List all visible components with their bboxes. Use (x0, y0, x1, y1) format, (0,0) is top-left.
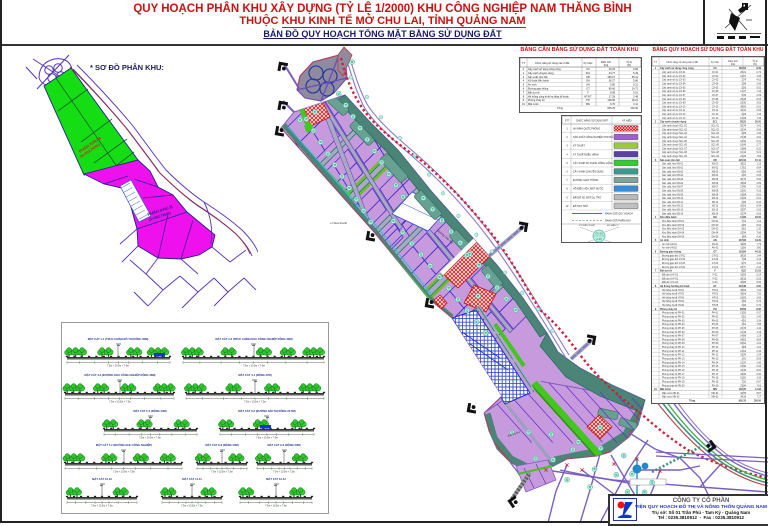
svg-text:MN-01: MN-01 (712, 393, 720, 395)
svg-text:Sản xuất, kho KB-01: Sản xuất, kho KB-01 (662, 163, 684, 166)
svg-text:100.53: 100.53 (739, 67, 747, 70)
svg-text:6.05: 6.05 (757, 213, 762, 215)
svg-text:0.70: 0.70 (757, 305, 762, 307)
svg-text:CX-06: CX-06 (712, 91, 719, 93)
svg-text:Cây xanh sử dụ CX-10: Cây xanh sử dụ CX-10 (662, 105, 686, 108)
svg-text:Cây xanh sử dụ CX-05: Cây xanh sử dụ CX-05 (662, 86, 686, 89)
svg-text:5.21: 5.21 (757, 152, 762, 154)
svg-text:26.21: 26.21 (740, 72, 746, 74)
svg-text:33.68: 33.68 (740, 194, 746, 196)
svg-text:PH-04: PH-04 (712, 324, 719, 326)
svg-text:17.27: 17.27 (740, 91, 746, 93)
svg-text:7.46: 7.46 (757, 91, 762, 93)
svg-text:Sản xuất, kho KB-10: Sản xuất, kho KB-10 (662, 197, 684, 200)
svg-text:21.37: 21.37 (740, 362, 746, 364)
svg-text:39.22: 39.22 (740, 164, 746, 166)
svg-text:6.76: 6.76 (610, 103, 615, 106)
svg-text:5: 5 (566, 162, 568, 165)
svg-text:CX-12: CX-12 (712, 114, 719, 116)
svg-text:Phòng cháy hộ PH-07: Phòng cháy hộ PH-07 (662, 336, 685, 338)
svg-text:20.86: 20.86 (740, 282, 746, 284)
svg-text:6: 6 (566, 171, 568, 174)
svg-text:HT/KT: HT/KT (584, 95, 592, 98)
svg-text:0.51: 0.51 (757, 106, 762, 108)
svg-text:8.81: 8.81 (757, 370, 762, 372)
svg-text:4.41: 4.41 (757, 343, 762, 345)
svg-text:2.44: 2.44 (757, 267, 762, 269)
svg-text:4.10: 4.10 (757, 236, 762, 238)
svg-text:GT: GT (586, 88, 590, 91)
svg-text:7.20: 7.20 (757, 294, 762, 296)
svg-text:KB-08: KB-08 (712, 190, 719, 192)
svg-text:2.09: 2.09 (757, 95, 762, 97)
svg-text:7.36: 7.36 (757, 118, 762, 120)
svg-text:SCL-06: SCL-06 (711, 145, 720, 147)
svg-text:MẶT CẮT 7-7 (ĐƯỜNG KHU CÔNG NG: MẶT CẮT 7-7 (ĐƯỜNG KHU CÔNG NGHIỆP) (96, 442, 152, 447)
svg-text:34.41: 34.41 (740, 110, 746, 112)
svg-text:4.45: 4.45 (757, 171, 762, 173)
svg-text:66.59: 66.59 (740, 308, 747, 311)
svg-text:6.34: 6.34 (757, 202, 762, 204)
svg-text:1.93: 1.93 (757, 133, 762, 135)
svg-text:33.24: 33.24 (740, 355, 746, 357)
svg-text:Sản xuất, kho KB-13: Sản xuất, kho KB-13 (662, 209, 684, 212)
svg-text:1.54: 1.54 (757, 355, 762, 357)
svg-text:8: 8 (523, 95, 525, 98)
svg-text:PH-20: PH-20 (712, 385, 719, 387)
svg-text:Cây xanh chuyê SCL-02: Cây xanh chuyê SCL-02 (662, 129, 688, 131)
svg-text:0.34: 0.34 (757, 366, 762, 368)
svg-text:Kỹ thuật điều hành: Kỹ thuật điều hành (528, 80, 549, 83)
svg-text:GT-04: GT-04 (712, 267, 719, 269)
svg-text:27.96: 27.96 (740, 187, 746, 189)
svg-text:CX-09: CX-09 (712, 103, 719, 105)
svg-text:6: 6 (523, 88, 525, 91)
svg-text:25.74: 25.74 (740, 126, 746, 128)
svg-text:DH-03: DH-03 (712, 229, 719, 231)
svg-text:Hệ thống hạ tầ HT-01: Hệ thống hạ tầ HT-01 (662, 289, 685, 292)
svg-text:CX-04: CX-04 (712, 83, 719, 85)
svg-text:7.5m + 10.5m + 7.5m: 7.5m + 10.5m + 7.5m (265, 506, 287, 508)
svg-text:Sản xuất, kho KB-09: Sản xuất, kho KB-09 (662, 193, 684, 196)
svg-text:CX-08: CX-08 (712, 99, 719, 101)
svg-text:6.01: 6.01 (757, 198, 762, 200)
svg-text:10.81: 10.81 (740, 378, 746, 380)
svg-text:8.39: 8.39 (756, 67, 761, 70)
svg-text:HỒ ĐIỀU HÒA, MẶT NƯỚC: HỒ ĐIỀU HÒA, MẶT NƯỚC (573, 188, 604, 191)
svg-text:HT-03: HT-03 (712, 297, 719, 299)
svg-text:32.55: 32.55 (740, 393, 746, 395)
svg-text:Cây xanh chuyên dụng: Cây xanh chuyên dụng (528, 72, 554, 75)
svg-text:KỸ THUẬT ĐIỀU HÀNH: KỸ THUẬT ĐIỀU HÀNH (573, 153, 599, 156)
svg-text:Cây xanh sử dụ CX-04: Cây xanh sử dụ CX-04 (662, 82, 686, 85)
svg-text:7.27: 7.27 (757, 397, 762, 399)
svg-text:Sản xuất, kho KB-03: Sản xuất, kho KB-03 (662, 170, 684, 173)
svg-text:12.69: 12.69 (740, 118, 746, 120)
svg-text:31.88: 31.88 (740, 148, 746, 150)
svg-text:167.08: 167.08 (739, 239, 747, 242)
svg-text:Tổng: Tổng (557, 106, 563, 110)
svg-text:4.51: 4.51 (742, 320, 747, 322)
svg-text:Đường giao thông: Đường giao thông (660, 251, 681, 254)
svg-text:2.85: 2.85 (742, 133, 747, 135)
svg-text:1.51: 1.51 (742, 324, 747, 326)
svg-text:Cây xanh chuyê SCL-06: Cây xanh chuyê SCL-06 (662, 145, 688, 147)
svg-text:CX-07: CX-07 (712, 95, 719, 97)
svg-text:Khu điều hành DH-04: Khu điều hành DH-04 (662, 231, 685, 234)
svg-text:2.30: 2.30 (757, 229, 762, 231)
svg-text:KB: KB (713, 159, 717, 162)
svg-text:9: 9 (566, 196, 568, 199)
svg-text:Phòng cháy hộ PH-11: Phòng cháy hộ PH-11 (662, 351, 685, 353)
svg-text:100.00: 100.00 (630, 107, 638, 110)
svg-text:Hệ thống hạ tầng kỹ thuật: Hệ thống hạ tầng kỹ thuật (660, 285, 690, 288)
svg-text:Cây xanh chuyê SCL-08: Cây xanh chuyê SCL-08 (662, 152, 688, 154)
svg-text:Chức năng sử dụng các ô đất: Chức năng sử dụng các ô đất (535, 61, 570, 65)
svg-text:Cây xanh sử dụ CX-08: Cây xanh sử dụ CX-08 (662, 98, 686, 101)
svg-text:DH-04: DH-04 (712, 232, 719, 234)
svg-text:4.42: 4.42 (757, 263, 762, 265)
svg-text:KB-10: KB-10 (712, 198, 719, 200)
svg-text:Cây xanh chuyê SCL-03: Cây xanh chuyê SCL-03 (662, 133, 688, 135)
svg-text:Cây xanh sử dụ CX-01: Cây xanh sử dụ CX-01 (662, 71, 686, 74)
svg-text:8: 8 (566, 188, 568, 191)
svg-text:1.19: 1.19 (757, 336, 762, 338)
svg-text:SCL-07: SCL-07 (711, 148, 720, 150)
svg-text:MN: MN (713, 388, 717, 391)
svg-text:Phòng cháy hộ PH-19: Phòng cháy hộ PH-19 (662, 381, 685, 383)
svg-text:27.38: 27.38 (740, 137, 746, 139)
svg-text:7.86: 7.86 (757, 232, 762, 234)
svg-text:13.93: 13.93 (740, 313, 746, 315)
svg-text:GT-02: GT-02 (712, 259, 719, 261)
svg-text:3.35: 3.35 (757, 76, 762, 78)
svg-text:PH-03: PH-03 (712, 320, 719, 322)
svg-text:40.25: 40.25 (609, 68, 616, 71)
svg-text:Hệ thống công trình hạ tầng kỹ: Hệ thống công trình hạ tầng kỹ thuật (528, 95, 569, 98)
svg-text:SCL-01: SCL-01 (711, 126, 720, 128)
svg-text:AN: AN (713, 239, 717, 242)
svg-text:35.08: 35.08 (740, 183, 746, 185)
svg-text:2.96: 2.96 (742, 305, 747, 307)
svg-text:Hệ thống hạ tầ HT-05: Hệ thống hạ tầ HT-05 (662, 304, 685, 307)
svg-text:21.36: 21.36 (740, 370, 746, 372)
svg-text:24.76: 24.76 (740, 328, 746, 330)
svg-text:Đất dự trữ: Đất dự trữ (660, 270, 672, 273)
svg-text:4: 4 (523, 80, 525, 83)
svg-text:MẶT CẮT 10-10: MẶT CẮT 10-10 (92, 476, 112, 481)
svg-text:8.53: 8.53 (757, 99, 762, 101)
svg-text:Phòng cháy hộ PH-16: Phòng cháy hộ PH-16 (662, 370, 685, 372)
svg-text:Phòng cháy hộ PH-08: Phòng cháy hộ PH-08 (662, 339, 685, 341)
svg-text:7.5m + 10.5m + 7.5m: 7.5m + 10.5m + 7.5m (107, 366, 129, 368)
svg-text:7.10: 7.10 (742, 381, 747, 383)
svg-text:3.34: 3.34 (757, 320, 762, 322)
svg-text:Sản xuất, kho KB-07: Sản xuất, kho KB-07 (662, 186, 684, 189)
svg-text:SỐ HIỆU Ô: SỐ HIỆU Ô (607, 224, 619, 227)
svg-text:CX: CX (713, 67, 717, 70)
svg-text:Phòng cháy hộ PH-01: Phòng cháy hộ PH-01 (662, 313, 685, 315)
svg-text:HT-02: HT-02 (712, 294, 719, 296)
svg-text:PH-10: PH-10 (712, 347, 719, 349)
svg-text:6.20: 6.20 (742, 114, 747, 116)
svg-text:STT: STT (565, 119, 570, 122)
svg-text:Phòng cháy hộ PH-15: Phòng cháy hộ PH-15 (662, 366, 685, 368)
svg-text:Tổng: Tổng (689, 400, 696, 403)
svg-text:RANH GIỚI PHÂN KHU: RANH GIỚI PHÂN KHU (605, 220, 631, 223)
svg-text:5.80: 5.80 (610, 84, 615, 87)
svg-text:Cây xanh sử dụ CX-07: Cây xanh sử dụ CX-07 (662, 94, 686, 97)
svg-text:CX-13: CX-13 (712, 118, 719, 120)
svg-text:Đất dự trữ F-03: Đất dự trữ F-03 (662, 281, 679, 284)
svg-text:KB-11: KB-11 (712, 202, 719, 204)
svg-text:204.48: 204.48 (739, 285, 747, 288)
svg-text:Phòng cháy hộ PH-04: Phòng cháy hộ PH-04 (662, 324, 685, 326)
svg-text:36.03: 36.03 (740, 290, 746, 292)
svg-text:SCL-08: SCL-08 (711, 152, 720, 154)
svg-text:HT-05: HT-05 (712, 305, 719, 307)
svg-text:Cây xanh sử dụ CX-06: Cây xanh sử dụ CX-06 (662, 90, 686, 93)
svg-text:Cây xanh chuyê SCL-04: Cây xanh chuyê SCL-04 (662, 137, 688, 139)
svg-text:Cây xanh sử dụng công cộng: Cây xanh sử dụng công cộng (528, 68, 561, 71)
svg-text:5.31: 5.31 (757, 141, 762, 143)
svg-text:4: 4 (566, 153, 568, 156)
svg-text:128.86: 128.86 (607, 99, 615, 102)
svg-text:Khu điều hành: Khu điều hành (660, 216, 677, 219)
svg-text:DH-02: DH-02 (712, 225, 719, 227)
svg-text:36.27: 36.27 (609, 80, 616, 83)
svg-text:0.21: 0.21 (633, 84, 638, 87)
svg-text:0.66: 0.66 (757, 129, 762, 131)
svg-text:3.19: 3.19 (757, 332, 762, 334)
svg-text:7.03: 7.03 (757, 385, 762, 387)
svg-text:3.80: 3.80 (757, 248, 762, 250)
svg-text:CX-05: CX-05 (712, 87, 719, 89)
svg-text:Đất dự trữ F-02: Đất dự trữ F-02 (662, 277, 679, 280)
svg-text:2.63: 2.63 (757, 210, 762, 212)
svg-text:GT-01: GT-01 (712, 255, 719, 257)
svg-text:CX-10: CX-10 (712, 106, 719, 108)
svg-text:38.15: 38.15 (740, 278, 746, 280)
svg-text:10.14: 10.14 (740, 152, 746, 154)
svg-text:9: 9 (523, 99, 525, 102)
svg-text:4.16: 4.16 (757, 190, 762, 192)
svg-text:CX-03: CX-03 (712, 80, 719, 82)
svg-text:4.62: 4.62 (757, 80, 762, 82)
svg-text:2.89: 2.89 (757, 183, 762, 185)
svg-text:Đường giao thông: Đường giao thông (528, 88, 549, 91)
svg-text:110.84: 110.84 (739, 251, 747, 254)
svg-text:32.86: 32.86 (740, 244, 746, 246)
svg-text:2: 2 (523, 72, 525, 75)
svg-text:2.90: 2.90 (742, 202, 747, 204)
svg-text:6.66: 6.66 (633, 68, 638, 71)
svg-text:MN: MN (586, 103, 590, 106)
svg-text:Sản xuất, kho KB-02: Sản xuất, kho KB-02 (662, 167, 684, 170)
svg-text:2.48: 2.48 (633, 95, 638, 98)
svg-text:3.91: 3.91 (757, 137, 762, 139)
svg-text:7.79: 7.79 (757, 244, 762, 246)
svg-text:PH-14: PH-14 (712, 362, 719, 364)
svg-text:35.04: 35.04 (740, 294, 746, 296)
svg-text:5.61: 5.61 (742, 229, 747, 231)
svg-text:5.39: 5.39 (757, 187, 762, 189)
svg-text:15.74: 15.74 (740, 213, 746, 215)
svg-text:25.28: 25.28 (740, 99, 746, 101)
svg-text:Phòng cháy hộ PH-17: Phòng cháy hộ PH-17 (662, 374, 685, 376)
svg-text:22.14: 22.14 (740, 129, 746, 131)
svg-text:TT: TT (522, 61, 526, 65)
svg-text:AN: AN (586, 84, 590, 87)
svg-text:KB-14: KB-14 (712, 213, 719, 215)
svg-text:Đất dự trữ: Đất dự trữ (528, 91, 540, 94)
svg-text:PH-07: PH-07 (712, 336, 719, 338)
svg-text:5.49: 5.49 (633, 72, 638, 75)
svg-text:8.56: 8.56 (757, 359, 762, 361)
svg-text:2.16: 2.16 (757, 259, 762, 261)
svg-text:Cây xanh sử dụ CX-03: Cây xanh sử dụ CX-03 (662, 79, 686, 82)
svg-text:KÝ HIỆU: KÝ HIỆU (622, 119, 632, 122)
svg-text:GT: GT (713, 251, 717, 254)
svg-text:17.02: 17.02 (740, 168, 746, 170)
svg-text:MẶT CẮT 6-6 (ĐƯỜNG NỘI THỊ RỘN: MẶT CẮT 6-6 (ĐƯỜNG NỘI THỊ RỘNG 22.5M) (238, 408, 295, 413)
svg-text:14.71: 14.71 (632, 88, 639, 91)
svg-text:MẶT CẮT 4-4 (RỘNG 27M): MẶT CẮT 4-4 (RỘNG 27M) (238, 372, 271, 377)
svg-text:2.15: 2.15 (596, 237, 602, 241)
svg-text:Khu điều hành DH-05: Khu điều hành DH-05 (662, 235, 685, 238)
svg-text:8.51: 8.51 (757, 194, 762, 196)
svg-text:MẶT CẮT 5-5 (RỘNG 24M): MẶT CẮT 5-5 (RỘNG 24M) (133, 408, 166, 413)
svg-text:Mặt nước: Mặt nước (528, 103, 540, 106)
svg-text:F-03: F-03 (713, 282, 718, 284)
svg-text:8.95: 8.95 (756, 308, 761, 311)
svg-text:PH-06: PH-06 (712, 332, 719, 334)
svg-text:KB-13: KB-13 (712, 210, 719, 212)
svg-text:PH: PH (713, 308, 717, 311)
svg-text:(%): (%) (753, 63, 757, 66)
svg-text:Mặt nước: Mặt nước (660, 388, 672, 391)
svg-text:7: 7 (566, 179, 568, 182)
svg-text:PH-02: PH-02 (712, 317, 719, 319)
svg-text:KB-02: KB-02 (712, 168, 719, 170)
svg-text:3.96: 3.96 (757, 83, 762, 85)
svg-text:30.70: 30.70 (740, 179, 746, 181)
svg-text:Mặt nước MN-01: Mặt nước MN-01 (662, 392, 680, 395)
svg-text:0.91: 0.91 (757, 87, 762, 89)
svg-text:PH: PH (586, 99, 590, 102)
svg-text:6.97: 6.97 (757, 381, 762, 383)
svg-text:3: 3 (523, 76, 525, 79)
svg-text:8.87: 8.87 (757, 393, 762, 395)
svg-text:Cây xanh sử dụ CX-12: Cây xanh sử dụ CX-12 (662, 113, 686, 116)
svg-text:Sản xuất, kho KB-14: Sản xuất, kho KB-14 (662, 212, 684, 215)
svg-text:1.45: 1.45 (757, 317, 762, 319)
svg-text:MẶT CẮT 3-3 (ĐƯỜNG KHU CÔNG NG: MẶT CẮT 3-3 (ĐƯỜNG KHU CÔNG NGHIỆP RỘNG … (85, 372, 156, 377)
svg-text:KB-03: KB-03 (712, 171, 719, 173)
svg-text:3.89: 3.89 (742, 347, 747, 349)
svg-text:KB-07: KB-07 (712, 187, 719, 189)
svg-text:16.00: 16.00 (740, 297, 746, 299)
svg-text:Đường giao thô GT-03: Đường giao thô GT-03 (662, 262, 686, 265)
svg-text:Sản xuất, kho KB-05: Sản xuất, kho KB-05 (662, 178, 684, 181)
svg-text:Sản xuất, kho bãi: Sản xuất, kho bãi (660, 159, 680, 162)
svg-text:Đường giao thô GT-01: Đường giao thô GT-01 (662, 254, 686, 257)
svg-text:23.30: 23.30 (740, 103, 746, 105)
svg-text:F-01: F-01 (713, 274, 718, 276)
svg-text:7.5m + 10.5m + 7.5m: 7.5m + 10.5m + 7.5m (211, 472, 233, 474)
svg-text:Phòng cháy hộ PH-13: Phòng cháy hộ PH-13 (662, 359, 685, 361)
svg-text:3.41: 3.41 (757, 126, 762, 128)
svg-text:5.60: 5.60 (757, 282, 762, 284)
svg-text:4.59: 4.59 (742, 301, 747, 303)
svg-text:SCL: SCL (586, 72, 591, 75)
svg-text:1.15: 1.15 (757, 164, 762, 166)
svg-text:PH-15: PH-15 (712, 366, 719, 368)
svg-text:KỸ THUẬT: KỸ THUẬT (573, 145, 585, 148)
svg-text:26.06: 26.06 (740, 206, 746, 208)
svg-text:Cây xanh sử dụng công cộng: Cây xanh sử dụng công cộng (660, 67, 694, 70)
svg-text:7.14: 7.14 (742, 221, 747, 223)
svg-text:7.5m + 10.5m + 7.5m: 7.5m + 10.5m + 7.5m (256, 438, 278, 440)
svg-text:PH-16: PH-16 (712, 370, 719, 372)
svg-text:1.40: 1.40 (757, 362, 762, 364)
svg-text:1: 1 (523, 68, 525, 71)
svg-text:Hệ thống hạ tầ HT-04: Hệ thống hạ tầ HT-04 (662, 300, 685, 303)
svg-text:ĐẤT DỰ TRỮ: ĐẤT DỰ TRỮ (573, 205, 588, 208)
svg-text:58.31: 58.31 (740, 121, 747, 124)
svg-text:CÂY XANH CHUYÊN DỤNG: CÂY XANH CHUYÊN DỤNG (573, 171, 604, 174)
svg-text:HT: HT (713, 285, 717, 288)
svg-text:1.44: 1.44 (757, 255, 762, 257)
svg-text:* SƠ ĐỒ PHÂN KHU:: * SƠ ĐỒ PHÂN KHU: (90, 62, 164, 72)
svg-text:3.65: 3.65 (757, 297, 762, 299)
svg-text:CX-01: CX-01 (595, 232, 603, 236)
svg-text:Hệ thống hạ tầ HT-03: Hệ thống hạ tầ HT-03 (662, 296, 685, 299)
svg-text:23.62: 23.62 (755, 216, 762, 219)
svg-text:19.23: 19.23 (740, 198, 746, 200)
svg-text:An ninh AN-02: An ninh AN-02 (662, 247, 678, 250)
svg-text:AN-01: AN-01 (712, 243, 719, 246)
svg-text:15.94: 15.94 (740, 232, 746, 234)
svg-text:1.14: 1.14 (757, 221, 762, 223)
svg-text:MẶT CẮT 8-8 (RỘNG 20M): MẶT CẮT 8-8 (RỘNG 20M) (205, 442, 238, 447)
svg-text:100.00: 100.00 (754, 400, 762, 403)
svg-text:Chức năng sử dụng các ô đất: Chức năng sử dụng các ô đất (666, 61, 698, 64)
svg-text:7.5m + 10.5m + 7.5m: 7.5m + 10.5m + 7.5m (244, 402, 266, 404)
svg-text:HT-01: HT-01 (712, 290, 719, 292)
svg-text:CHỨC NĂNG SỬ DỤNG ĐẤT: CHỨC NĂNG SỬ DỤNG ĐẤT (576, 119, 609, 122)
svg-text:10: 10 (522, 103, 525, 106)
svg-text:PH-09: PH-09 (712, 343, 719, 345)
svg-text:CX-01: CX-01 (712, 72, 719, 74)
svg-text:89.66: 89.66 (609, 88, 616, 91)
svg-text:Cây xanh sử dụ CX-09: Cây xanh sử dụ CX-09 (662, 102, 686, 105)
svg-text:KÝ HIỆU Ô ĐẤT: KÝ HIỆU Ô ĐẤT (579, 224, 596, 227)
svg-text:Đất dự trữ F-01: Đất dự trữ F-01 (662, 273, 679, 276)
svg-text:Sản xuất, kho KB-11: Sản xuất, kho KB-11 (662, 201, 684, 204)
svg-text:3.65: 3.65 (756, 285, 761, 288)
svg-text:18.21: 18.21 (632, 99, 639, 102)
svg-text:CX: CX (586, 68, 590, 71)
svg-text:5.39: 5.39 (742, 95, 747, 97)
svg-text:Sản xuất, kho bãi: Sản xuất, kho bãi (528, 76, 548, 79)
svg-text:1.41: 1.41 (742, 359, 747, 361)
svg-text:RANH GIỚI QUY HOẠCH: RANH GIỚI QUY HOẠCH (605, 213, 633, 216)
svg-text:12.91: 12.91 (740, 141, 746, 143)
svg-text:6.25: 6.25 (757, 278, 762, 280)
svg-text:2.83: 2.83 (742, 225, 747, 227)
svg-text:34.77: 34.77 (609, 72, 616, 75)
